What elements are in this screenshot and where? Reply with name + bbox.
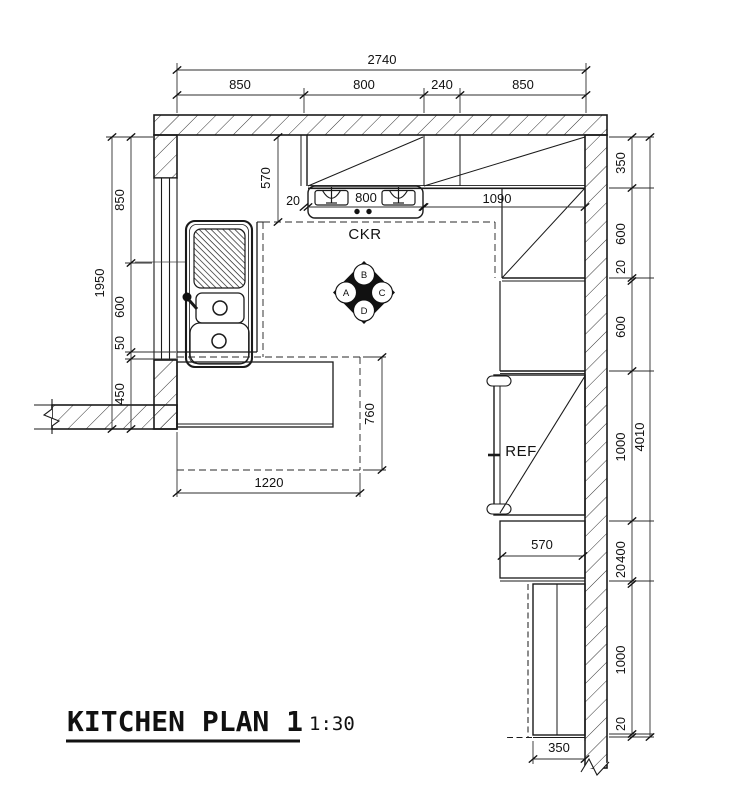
- dim-left-1: 850: [112, 189, 127, 211]
- dim-chain-top: 2740 850 800 240 850: [173, 52, 590, 113]
- dim-top-2: 800: [353, 77, 375, 92]
- wall-top: [154, 115, 607, 135]
- dim-right-1: 350: [613, 152, 628, 174]
- dim-right-counter-width: 570: [531, 537, 553, 552]
- plan-scale: 1:30: [309, 713, 355, 735]
- dim-right-4: 600: [613, 316, 628, 338]
- dim-peninsula-length: 1220: [255, 475, 284, 490]
- dim-right-8: 1000: [613, 646, 628, 675]
- fridge-label: REF: [505, 443, 537, 460]
- dim-left-4: 450: [112, 383, 127, 405]
- burner-left: [315, 187, 348, 205]
- section-marker-diamond: B A C D: [333, 261, 395, 324]
- base-cabinet-right: [500, 281, 585, 374]
- sink-drain: [213, 301, 227, 315]
- dim-left-total: 1950: [92, 269, 107, 298]
- peninsula-counter: [177, 362, 333, 427]
- dim-right-2: 600: [613, 223, 628, 245]
- title-block: KITCHEN PLAN 1 1:30: [66, 705, 355, 741]
- dim-right-3: 20: [614, 260, 628, 274]
- dim-top-1: 850: [229, 77, 251, 92]
- dim-right-5: 1000: [613, 433, 628, 462]
- kitchen-plan-canvas: REF 570 350: [0, 0, 730, 798]
- cabinet-diagonal: [308, 137, 423, 186]
- section-marker-right: C: [379, 288, 386, 299]
- plan-title: KITCHEN PLAN 1: [67, 705, 303, 738]
- sink-basin-large: [190, 323, 249, 364]
- fridge: REF: [487, 375, 585, 515]
- dim-hob-width: 800: [355, 190, 377, 205]
- dim-upper-cabinet-run: 1090: [483, 191, 512, 206]
- wall-left-upper: [154, 135, 177, 178]
- sink: [183, 221, 253, 367]
- dim-left-2: 600: [112, 296, 127, 318]
- dim-worktop-depth: 570: [258, 167, 273, 189]
- dim-right-9: 20: [614, 717, 628, 731]
- dim-right-total: 4010: [632, 423, 647, 452]
- wall-right: [585, 135, 607, 768]
- dim-top-3: 240: [431, 77, 453, 92]
- dim-tall-unit-width: 350: [548, 740, 570, 755]
- cooktop-knob: [354, 209, 359, 214]
- dim-peninsula-depth: 760: [362, 403, 377, 425]
- dim-top-4: 850: [512, 77, 534, 92]
- window-left: [154, 178, 177, 360]
- section-marker-left: A: [343, 288, 350, 299]
- dim-chain-right: 4010 350 600 20 600 1000 400 20 1000 20: [609, 133, 654, 740]
- sink-basin-small: [196, 293, 244, 323]
- fridge-hinge-top: [487, 376, 511, 386]
- sink-drainboard: [194, 229, 245, 288]
- corner-upper-cabinet-right: [502, 188, 585, 281]
- cabinet-diagonal: [502, 188, 585, 278]
- counter-bottom-right: 570: [498, 521, 587, 581]
- dim-hob-gap: 20: [286, 194, 300, 208]
- dim-left-3: 50: [113, 336, 127, 350]
- sink-drain: [212, 334, 226, 348]
- dim-top-total: 2740: [368, 52, 397, 67]
- section-marker-top: B: [361, 270, 367, 281]
- section-marker-bottom: D: [361, 306, 368, 317]
- cabinet-diagonal: [424, 137, 585, 186]
- kitchen-plan-drawing: REF 570 350: [0, 0, 730, 798]
- tall-unit-bottom-right: 350: [507, 584, 589, 764]
- cooktop-knob: [366, 209, 371, 214]
- burner-right: [382, 187, 415, 205]
- wall-stub-bottom-left: [52, 405, 177, 429]
- cooker-label: CKR: [348, 226, 381, 243]
- fridge-hinge-bottom: [487, 504, 511, 514]
- dim-right-6: 400: [613, 541, 628, 563]
- dim-right-7: 20: [614, 564, 628, 578]
- upper-cabinets-top: [301, 135, 585, 188]
